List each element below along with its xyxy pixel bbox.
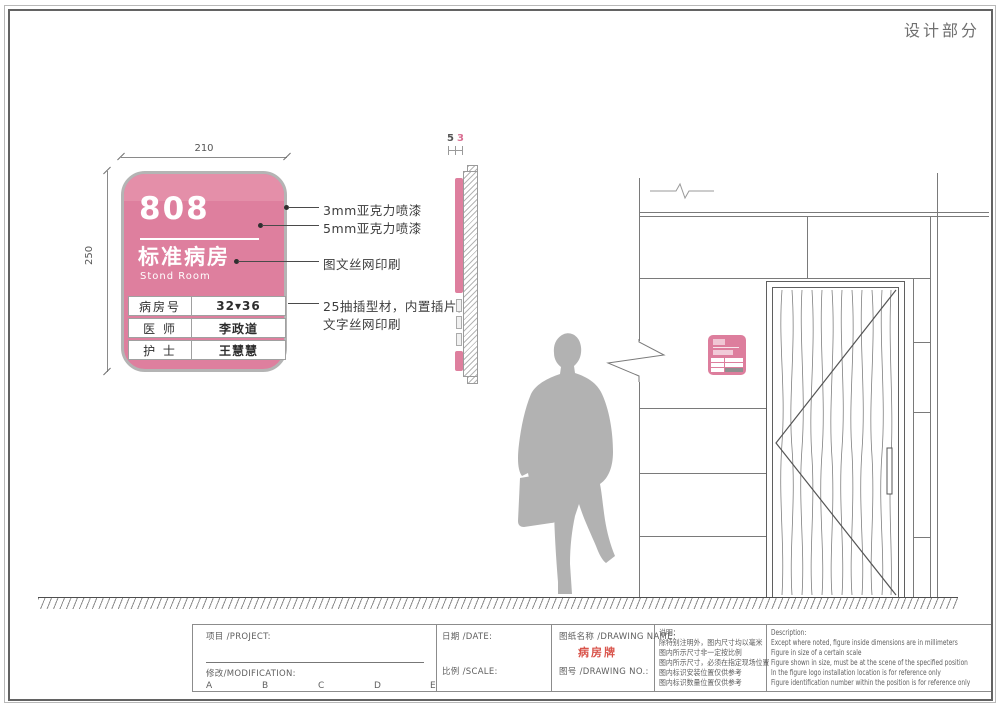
notes-cn-title: 说明： [659,628,769,638]
mini-sign-cell [725,358,743,362]
wall-left-edge [639,178,640,341]
notes-cn-line: 除特别注明外，图内尺寸均以毫米 [659,638,769,648]
annotation-insert-line2: 文字丝网印刷 [323,314,401,333]
revision-mark-b: B [262,681,268,691]
modification-label: 修改/MODIFICATION: [206,667,296,679]
notes-en-line: In the figure logo installation location… [771,668,970,678]
sign-title-english: Stond Room [140,271,211,282]
notes-cn-line: 图内标识安装位置仅供参考 [659,668,769,678]
mini-sign-cell [725,363,743,367]
notes-en-line: Figure identification number within the … [771,678,970,688]
wall-joint [639,473,766,474]
date-label: 日期 /DATE: [442,630,492,642]
mini-sign-rule [713,347,739,348]
row-label: 护 士 [128,340,192,360]
mini-sign-number-bar [713,339,725,345]
annotation-insert-line1: 25抽插型材，内置插片， [323,296,470,315]
break-line-symbol [650,183,714,199]
leader-line [238,261,319,262]
drawing-no-label: 图号 /DRAWING NO.: [559,665,649,677]
sign-divider-rule [140,238,259,240]
drawing-sheet: 设计部分 210 250 808 标准病房 Stond Room 病房号 32▾… [0,0,1000,706]
mini-room-sign [708,335,746,375]
modification-divider [206,662,424,663]
side-section-acrylic-top [455,178,463,293]
notes-english: Description: Except where noted, figure … [771,628,970,688]
mini-sign-cell [725,368,743,372]
annotation-5mm: 5mm亚克力喷漆 [323,218,422,237]
notes-cn-line: 图内所示尺寸，必须在指定现场位置 [659,658,769,668]
revision-mark-d: D [374,681,381,691]
row-value: 32▾36 [192,296,286,316]
side-dim-5: 5 [447,133,454,144]
dim-line-height [107,171,108,372]
wall-right-line [930,216,931,598]
notes-en-title: Description: [771,628,970,638]
title-block-divider [551,625,552,691]
leader-line [262,225,319,226]
wall-joint-right [913,537,930,538]
room-sign-front-view: 808 标准病房 Stond Room 病房号 32▾36 医 师 李政道 护 … [121,171,287,372]
mini-sign-cell [711,358,724,362]
notes-chinese: 说明： 除特别注明外，图内尺寸均以毫米 图内所示尺寸非一定按比例 图内所示尺寸，… [659,628,769,688]
title-block-divider [436,625,437,691]
wall-left-edge [639,382,640,597]
table-row: 病房号 32▾36 [128,296,286,316]
revision-mark-a: A [206,681,212,691]
side-section-insert-strip [456,299,462,312]
mini-sign-title-bar [713,350,733,355]
door-handle [887,448,892,494]
leader-line [288,303,319,304]
row-label: 病房号 [128,296,192,316]
wall-joint-right [913,342,930,343]
room-number: 808 [139,194,210,225]
door-woodgrain [773,288,898,597]
wall-joint [639,278,930,279]
notes-en-line: Figure in size of a certain scale [771,648,970,658]
side-section-insert-strip [456,316,462,329]
side-dim-line [448,150,463,151]
sign-info-table: 病房号 32▾36 医 师 李政道 护 士 王慧慧 [128,296,286,362]
dim-label-height: 250 [84,246,95,265]
person-silhouette [512,332,628,598]
side-section-tab-bottom [467,376,478,384]
drawing-name-value: 病房牌 [578,644,617,660]
notes-en-line: Figure shown in size, must be at the sce… [771,658,970,668]
mini-sign-cell [711,368,724,372]
annotation-3mm: 3mm亚克力喷漆 [323,200,422,219]
door-side-column-line [913,278,914,598]
wall-joint-right [913,412,930,413]
side-section-insert-strip [456,333,462,346]
side-section-back-panel [463,171,478,377]
row-value: 李政道 [192,318,286,338]
revision-mark-e: E [430,681,436,691]
wall-panel-joint [807,216,808,278]
title-block: 项目 /PROJECT: 修改/MODIFICATION: A B C D E … [192,624,991,692]
ground-hatch [38,597,958,609]
side-dim-3: 3 [457,133,464,144]
wall-right-edge [937,173,938,598]
sheet-corner-title: 设计部分 [904,17,980,41]
wall-joint [639,536,766,537]
leader-line [288,207,319,208]
side-section-acrylic-bottom [455,351,463,371]
notes-cn-line: 图内标识数量位置仅供参考 [659,678,769,688]
row-value: 王慧慧 [192,340,286,360]
dim-line-width [121,157,287,158]
notes-cn-line: 图内所示尺寸非一定按比例 [659,648,769,658]
revision-mark-c: C [318,681,324,691]
table-row: 护 士 王慧慧 [128,340,286,360]
scale-label: 比例 /SCALE: [442,665,498,677]
project-label: 项目 /PROJECT: [206,630,271,642]
row-label: 医 师 [128,318,192,338]
dim-label-width: 210 [121,143,287,154]
mini-sign-cell [711,363,724,367]
briefcase [518,473,557,527]
notes-en-line: Except where noted, figure inside dimens… [771,638,970,648]
wall-joint [639,408,766,409]
table-row: 医 师 李政道 [128,318,286,338]
sign-title-chinese: 标准病房 [138,246,230,269]
annotation-silkscreen: 图文丝网印刷 [323,254,401,273]
door-swing-diagonal [776,290,896,595]
